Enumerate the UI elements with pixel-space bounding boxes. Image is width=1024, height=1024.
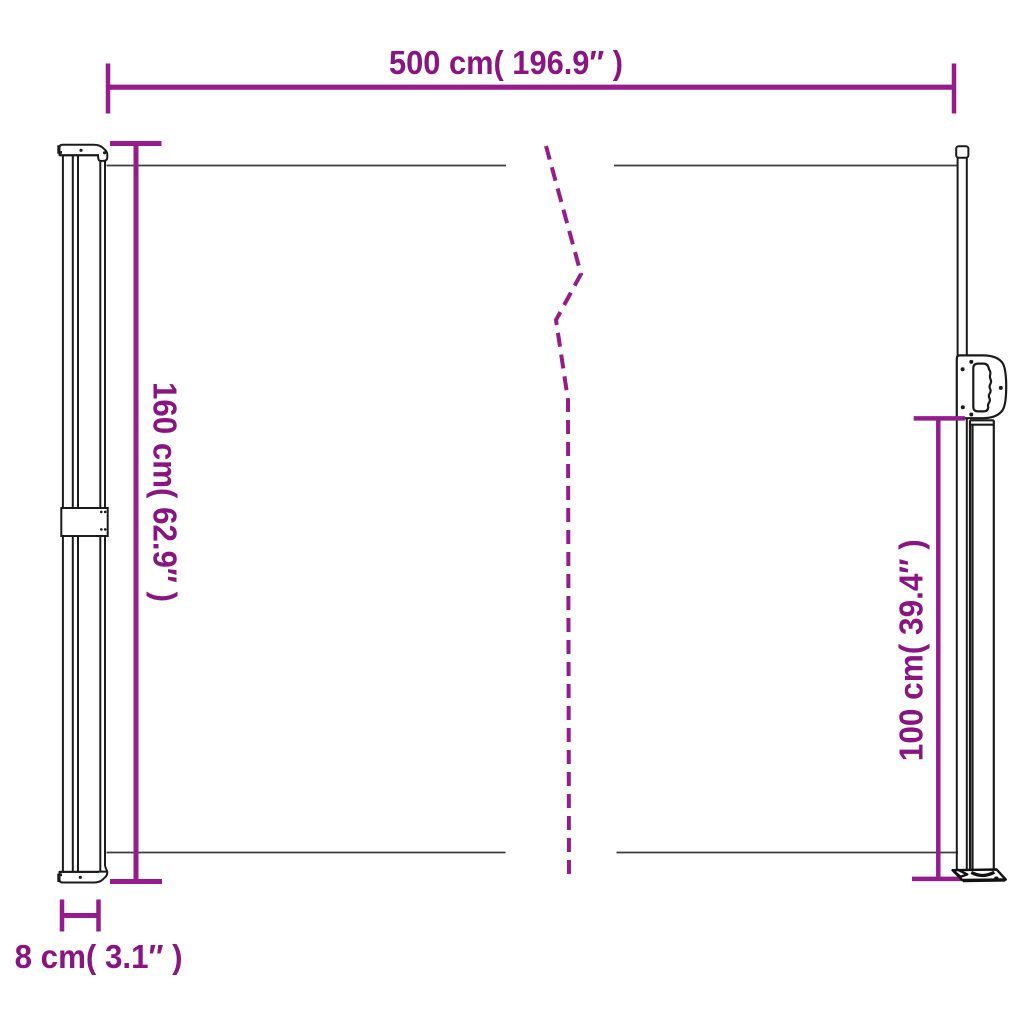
svg-text:8 cm( 3.1″ ): 8 cm( 3.1″ )	[15, 938, 183, 975]
svg-text:100 cm( 39.4″ ): 100 cm( 39.4″ )	[893, 539, 930, 761]
svg-text:160 cm( 62.9″ ): 160 cm( 62.9″ )	[147, 382, 184, 602]
svg-text:500 cm( 196.9″ ): 500 cm( 196.9″ )	[389, 44, 623, 81]
